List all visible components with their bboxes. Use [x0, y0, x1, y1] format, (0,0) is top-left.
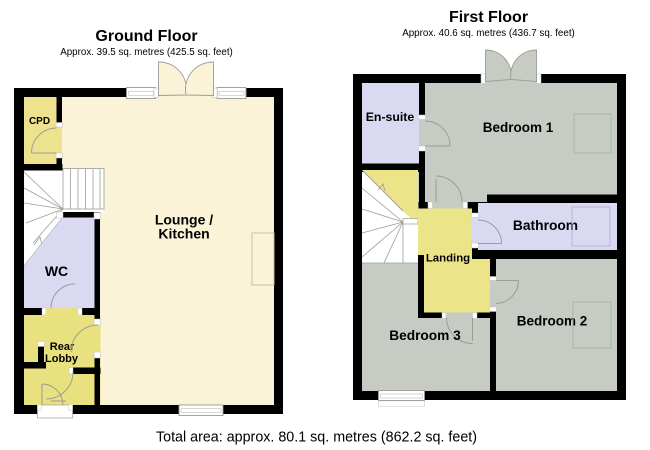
svg-text:Ground Floor: Ground Floor	[95, 28, 197, 45]
svg-text:Landing: Landing	[426, 253, 470, 265]
svg-text:Approx. 40.6 sq. metres (436.7: Approx. 40.6 sq. metres (436.7 sq. feet)	[402, 28, 575, 39]
svg-text:En-suite: En-suite	[366, 110, 415, 124]
svg-text:Bedroom 3: Bedroom 3	[389, 328, 461, 343]
svg-text:Bedroom 2: Bedroom 2	[517, 314, 588, 329]
svg-text:WC: WC	[45, 263, 68, 279]
svg-text:Bedroom 1: Bedroom 1	[483, 120, 554, 135]
svg-text:Bathroom: Bathroom	[513, 218, 578, 233]
svg-text:CPD: CPD	[29, 116, 50, 127]
svg-text:Approx. 39.5 sq. metres (425.5: Approx. 39.5 sq. metres (425.5 sq. feet)	[60, 47, 233, 58]
svg-text:First Floor: First Floor	[449, 9, 528, 26]
svg-text:Kitchen: Kitchen	[158, 226, 209, 242]
svg-text:Lobby: Lobby	[45, 353, 79, 365]
svg-text:Total area: approx. 80.1 sq. m: Total area: approx. 80.1 sq. metres (862…	[156, 430, 477, 446]
